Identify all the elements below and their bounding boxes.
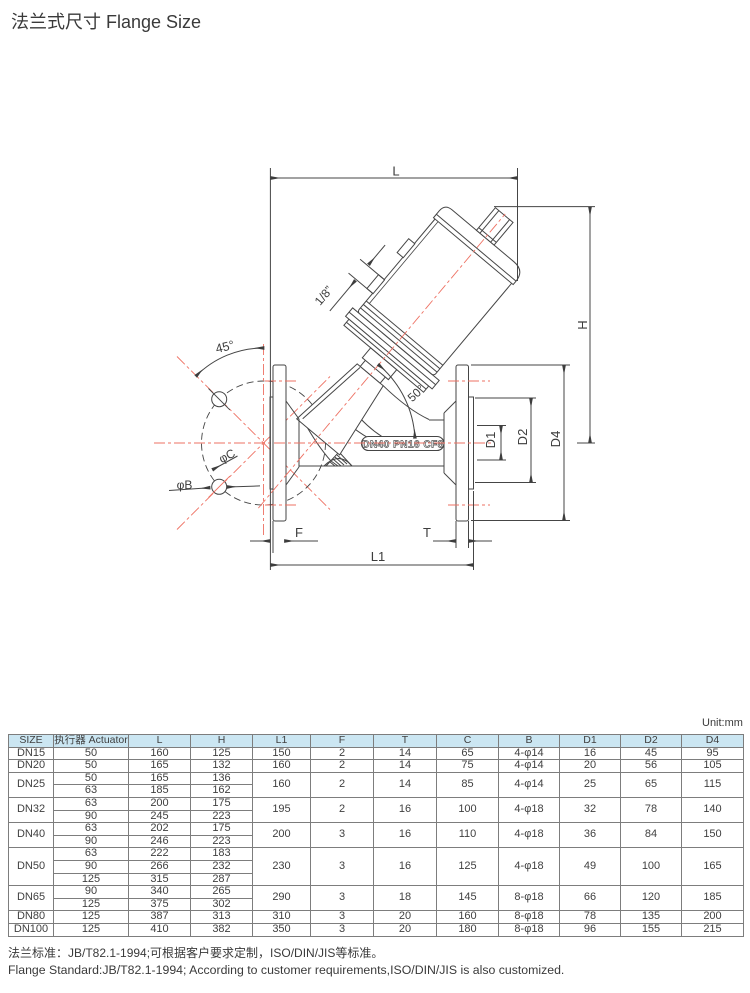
svg-text:T: T xyxy=(423,525,431,540)
svg-text:H: H xyxy=(575,320,590,329)
svg-text:DN40 PN16 CF8: DN40 PN16 CF8 xyxy=(362,440,444,451)
svg-text:L: L xyxy=(392,164,399,179)
svg-text:1/8”: 1/8” xyxy=(312,283,336,308)
svg-text:F: F xyxy=(295,525,303,540)
svg-text:L1: L1 xyxy=(371,549,385,564)
svg-text:φB: φB xyxy=(177,478,193,492)
svg-text:φC: φC xyxy=(216,446,237,466)
svg-text:D1: D1 xyxy=(483,432,498,449)
svg-text:D4: D4 xyxy=(548,431,563,448)
svg-text:D2: D2 xyxy=(515,429,530,446)
